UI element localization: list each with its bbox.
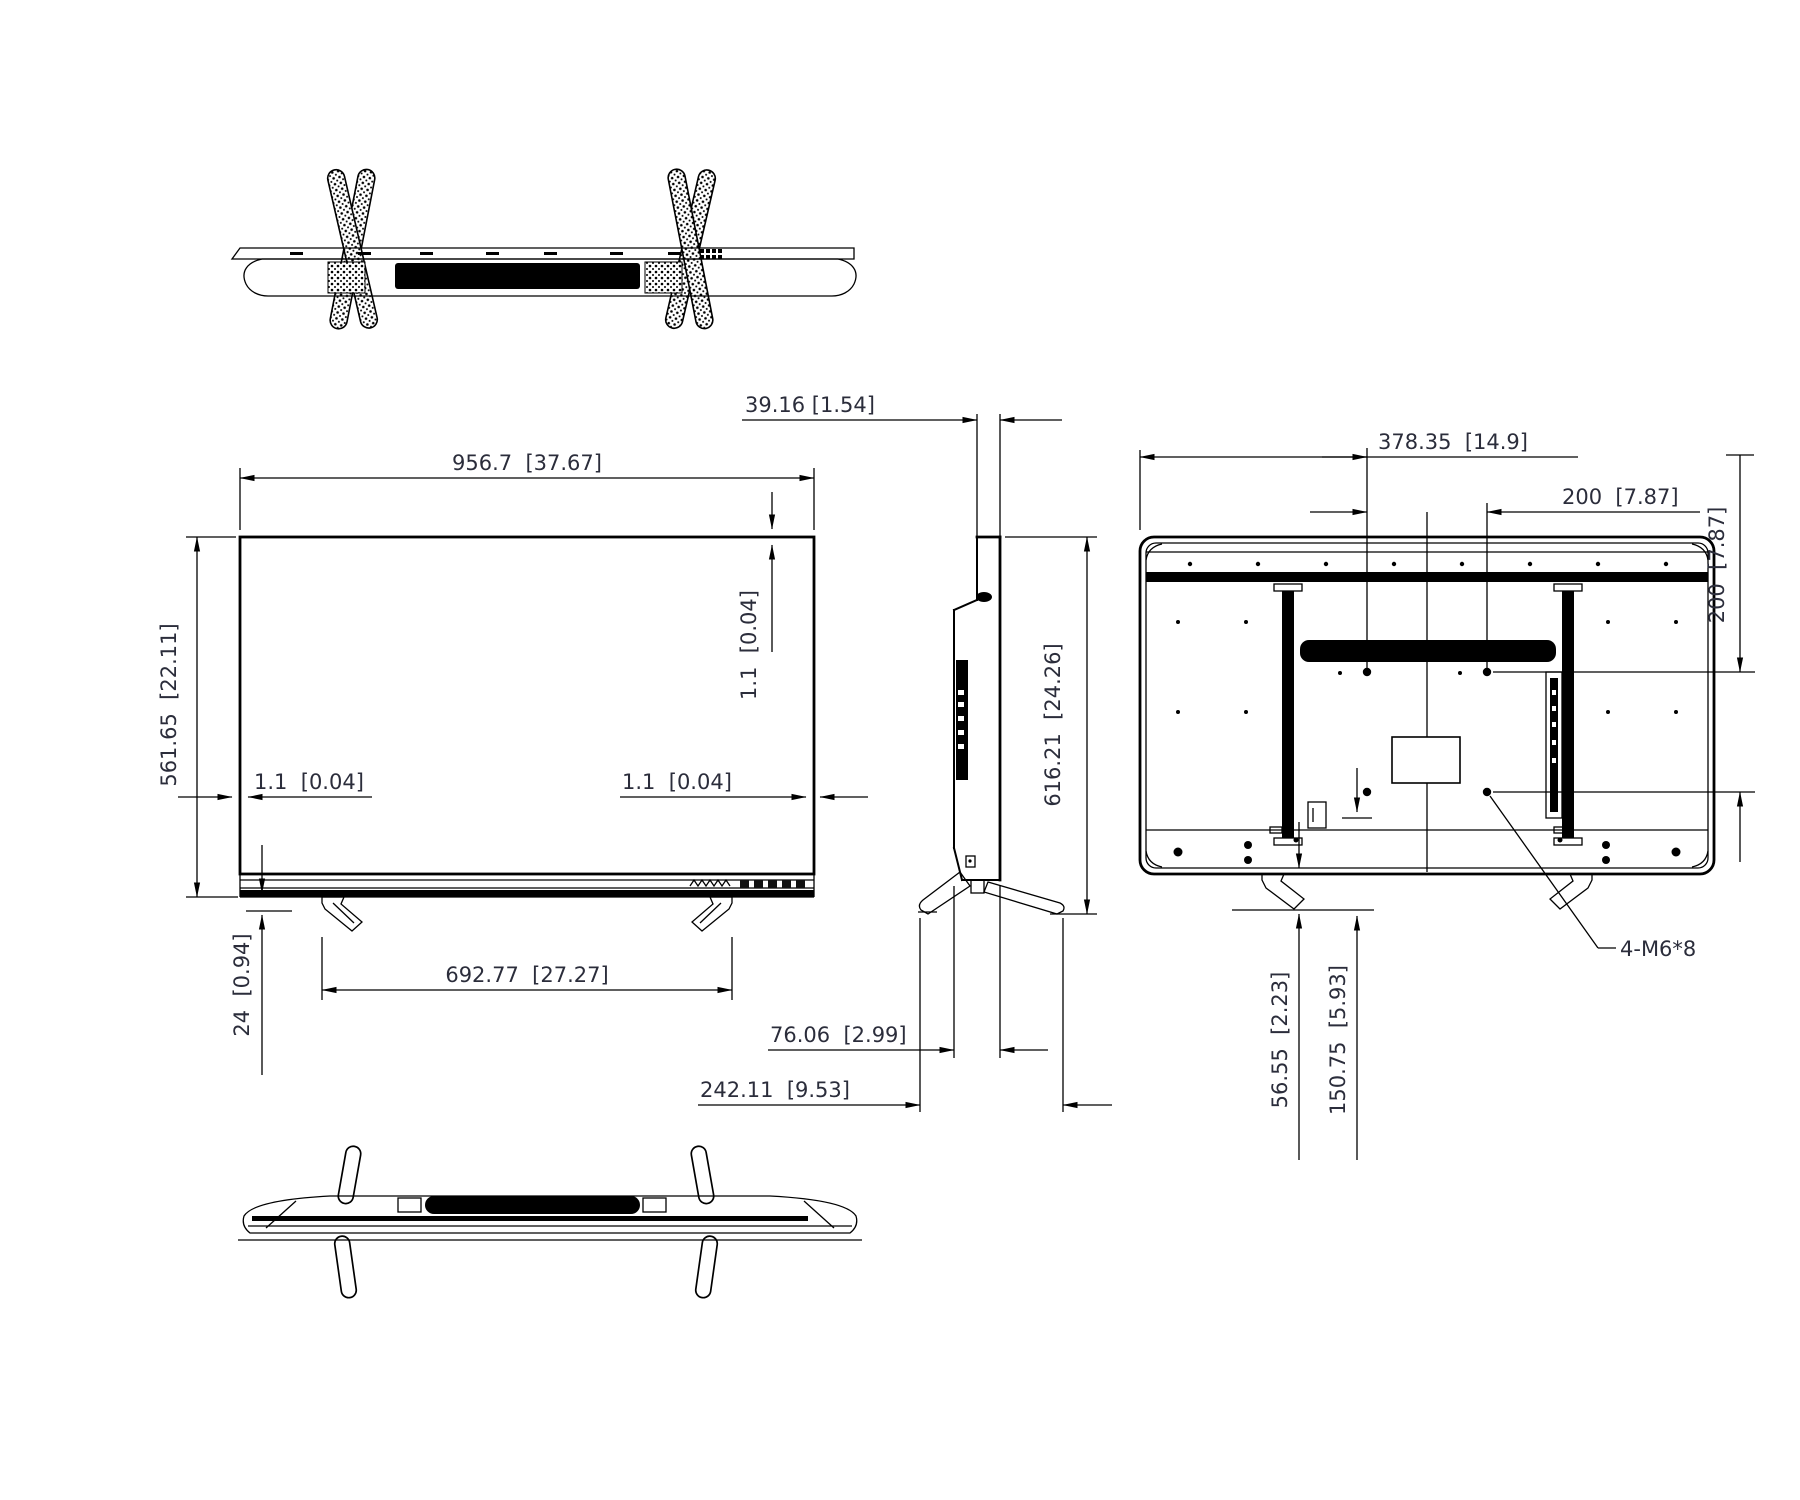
rear-view-left-column bbox=[1274, 584, 1302, 845]
dim-bezel-right: 1.1 [0.04] bbox=[622, 770, 732, 794]
dim-screw-spec: 4-M6*8 bbox=[1620, 937, 1696, 961]
top-view-right-pad bbox=[645, 262, 682, 293]
dim-stand-depth-group: 242.11 [9.53] bbox=[698, 918, 1112, 1112]
dim-bezel-left-group: 1.1 [0.04] bbox=[178, 770, 372, 797]
dim-bezel-left: 1.1 [0.04] bbox=[254, 770, 364, 794]
top-view-connector-grid bbox=[700, 249, 722, 259]
dim-front-height: 561.65 [22.11] bbox=[157, 623, 181, 786]
front-view-bottom-strip bbox=[240, 890, 814, 897]
rear-view-bracket bbox=[1308, 802, 1326, 828]
front-view-screen bbox=[240, 537, 814, 874]
front-view-right-foot bbox=[692, 897, 732, 931]
dim-stand-depth: 242.11 [9.53] bbox=[700, 1078, 850, 1102]
rear-view-right-foot bbox=[1550, 874, 1592, 909]
dimension-drawing-sheet: 956.7 [37.67] 39.16 [1.54] 561.65 [22.11… bbox=[0, 0, 1800, 1500]
dim-bezel-top-group: 1.1 [0.04] bbox=[737, 492, 772, 700]
dim-body-depth: 76.06 [2.99] bbox=[770, 1023, 907, 1047]
dim-vesa-height: 200 [7.87] bbox=[1705, 507, 1729, 624]
dim-vesa-offset: 378.35 [14.9] bbox=[1378, 430, 1528, 454]
dim-front-height-group: 561.65 [22.11] bbox=[157, 537, 238, 897]
bottom-view-strip bbox=[252, 1216, 808, 1221]
front-view-speaker-grille bbox=[690, 880, 730, 886]
dim-stand-height: 56.55 [2.23] bbox=[1268, 972, 1292, 1109]
bottom-view-vent bbox=[425, 1196, 640, 1214]
dim-panel-thickness: 39.16 [1.54] bbox=[745, 393, 875, 417]
top-view-front-strip bbox=[232, 248, 854, 259]
bottom-view-stand-legs bbox=[334, 1145, 718, 1299]
dim-body-depth-group: 76.06 [2.99] bbox=[768, 886, 1048, 1058]
front-view-left-foot bbox=[322, 897, 362, 931]
rear-view-connector-panel bbox=[1546, 672, 1562, 818]
dim-bezel-top: 1.1 [0.04] bbox=[737, 590, 761, 700]
dim-feet-span: 692.77 [27.27] bbox=[445, 963, 608, 987]
rear-view-speaker-bar bbox=[1300, 640, 1556, 662]
dim-total-height-group: 616.21 [24.26] bbox=[1005, 537, 1097, 914]
dim-front-width-group: 956.7 [37.67] bbox=[240, 451, 814, 530]
dim-total-height: 616.21 [24.26] bbox=[1041, 643, 1065, 806]
dim-screw-spec-group: 4-M6*8 bbox=[1490, 796, 1696, 961]
dim-front-width: 956.7 [37.67] bbox=[452, 451, 602, 475]
dim-vesa-width: 200 [7.87] bbox=[1562, 485, 1679, 509]
dim-feet-span-group: 692.77 [27.27] bbox=[322, 937, 732, 1000]
drawing-canvas: 956.7 [37.67] 39.16 [1.54] 561.65 [22.11… bbox=[0, 0, 1800, 1500]
dim-vesa-offset-group: 378.35 [14.9] bbox=[1140, 430, 1578, 668]
rear-view-top-screws bbox=[1188, 562, 1668, 566]
rear-view-right-column bbox=[1554, 584, 1582, 845]
rear-view-left-foot bbox=[1262, 874, 1304, 909]
rear-view-label-plate bbox=[1392, 737, 1460, 783]
top-view-vent bbox=[395, 263, 640, 289]
top-view-left-pad bbox=[328, 262, 365, 293]
view-bottom bbox=[238, 1145, 862, 1299]
view-top bbox=[232, 168, 856, 330]
view-front bbox=[240, 537, 814, 931]
dim-stand-clearance-group: 150.75 [5.93] bbox=[1326, 768, 1372, 1160]
side-view-hinge bbox=[976, 592, 992, 602]
dim-panel-thickness-group: 39.16 [1.54] bbox=[742, 393, 1062, 540]
dim-stand-clearance: 150.75 [5.93] bbox=[1326, 965, 1350, 1115]
top-view-stand-legs bbox=[326, 168, 717, 330]
front-view-control-buttons bbox=[740, 880, 805, 888]
dim-bezel-right-group: 1.1 [0.04] bbox=[620, 770, 868, 797]
dim-feet-height: 24 [0.94] bbox=[230, 933, 254, 1036]
view-rear bbox=[1140, 512, 1714, 909]
